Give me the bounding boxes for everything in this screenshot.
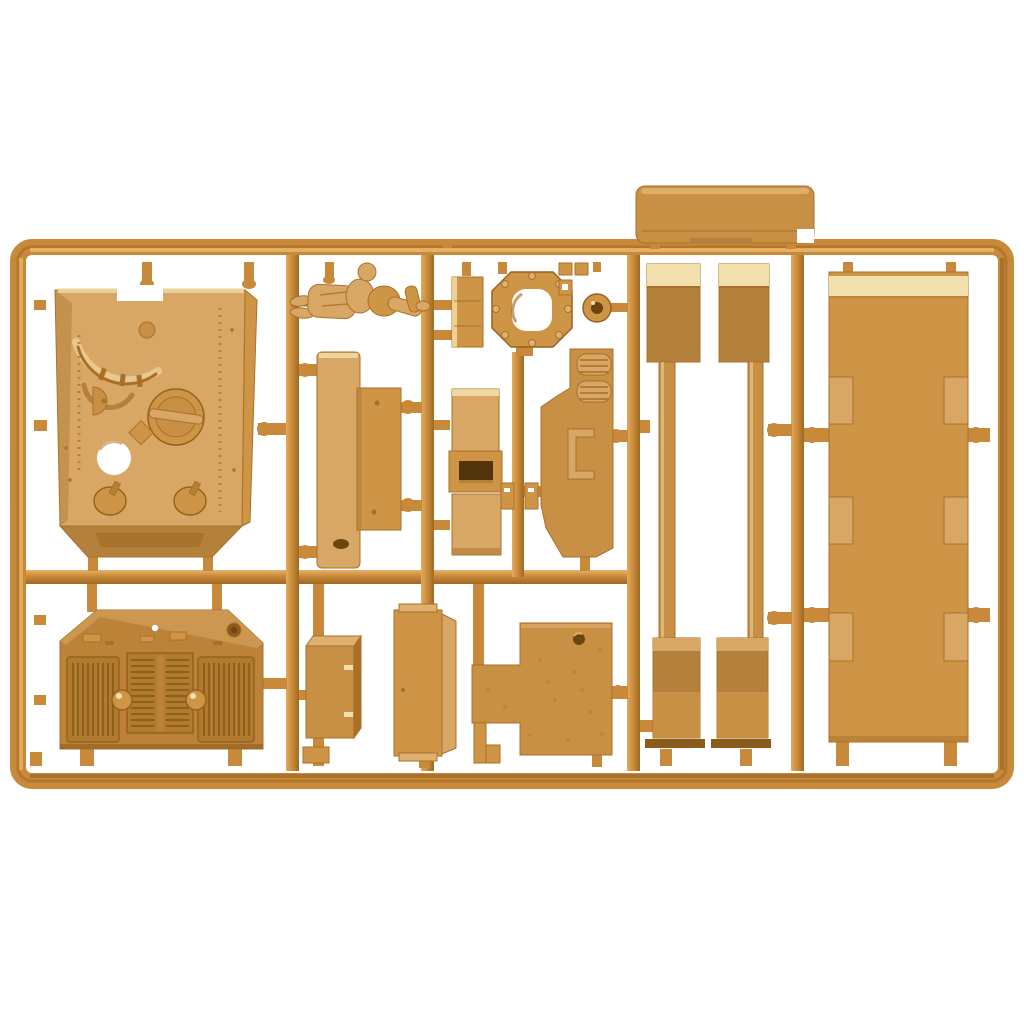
mudguard-plate-front: [357, 388, 401, 530]
sprue-photo: [0, 0, 1024, 1024]
sprue-photo-svg: [0, 0, 1024, 1024]
turret-roof-panel: [55, 285, 257, 557]
hinge-plate: [452, 277, 483, 347]
mudguard-plate-rear: [317, 352, 360, 568]
engine-deck-panel: [60, 610, 263, 749]
roof-plate: [636, 186, 814, 244]
door-plate: [394, 604, 456, 761]
hull-floor-panel: [829, 272, 968, 742]
periscope-ring: [583, 294, 611, 322]
